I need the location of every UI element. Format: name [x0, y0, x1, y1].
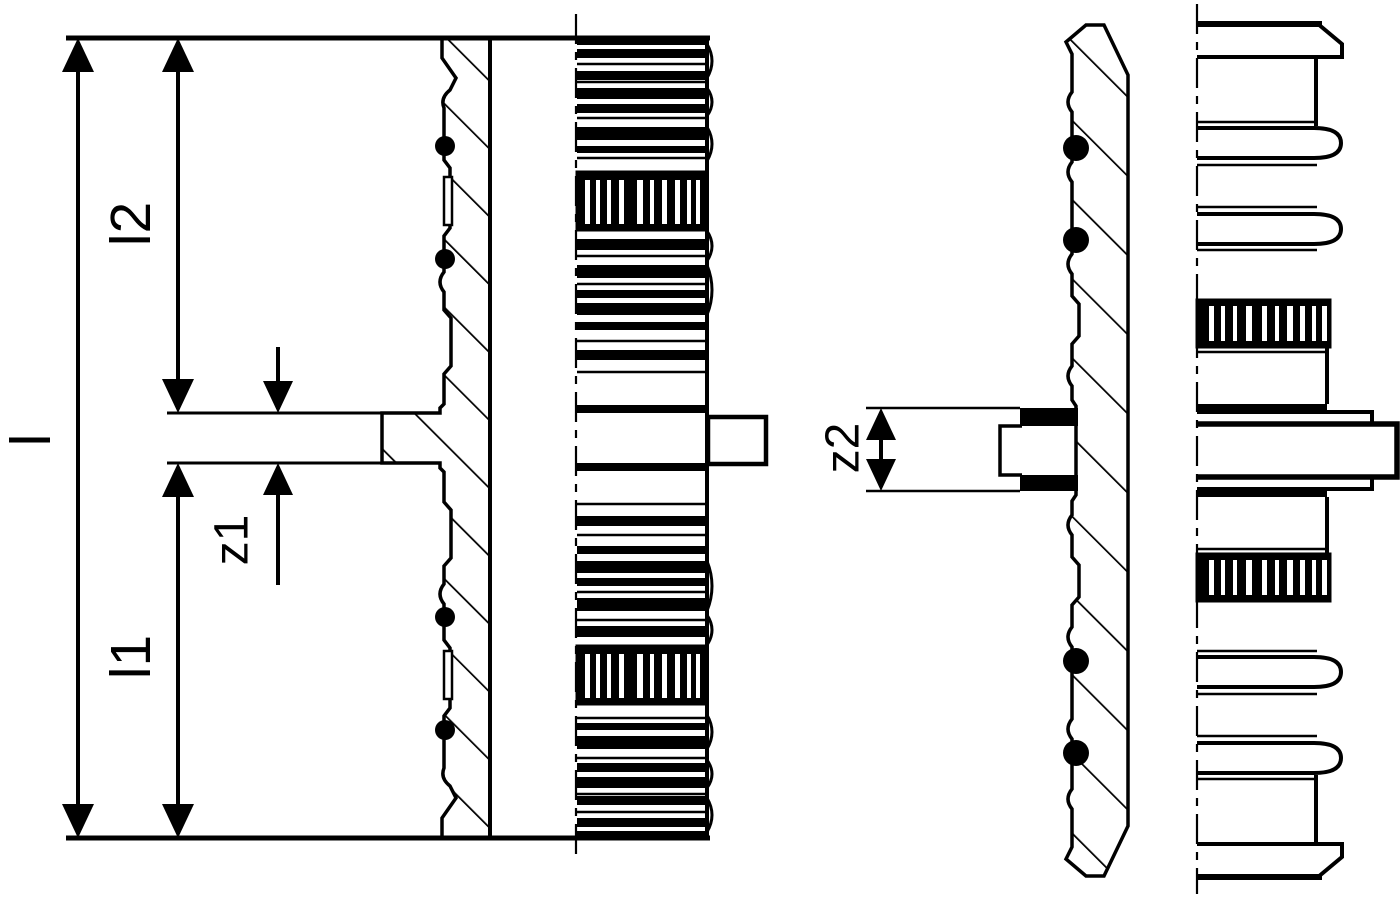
dimension-z2: z2: [817, 408, 1021, 491]
label-l: l: [0, 434, 63, 447]
bulge-ring: [1197, 214, 1341, 244]
dimension-l2: l2: [99, 38, 194, 413]
arrowhead-down: [263, 381, 293, 413]
fitting-body-section: [382, 38, 490, 838]
collar-seal-groove: [1000, 408, 1078, 491]
left-view: l l2 l1 z1: [0, 14, 766, 862]
collar-seal: [1020, 408, 1078, 426]
bulge-ring: [1197, 743, 1341, 773]
right-view: z2: [817, 4, 1398, 894]
knurl-band-upper: [577, 172, 707, 230]
arrowhead-up: [866, 408, 896, 440]
o-ring: [435, 720, 455, 740]
stop-collar-external: [1197, 404, 1397, 497]
body-wall: [382, 38, 490, 838]
end-cap-top: [1197, 24, 1342, 57]
bulge-ring: [1197, 657, 1341, 687]
bulge-ring: [1197, 128, 1341, 158]
o-ring: [1063, 740, 1089, 766]
o-ring: [1063, 648, 1089, 674]
label-z1: z1: [206, 515, 259, 566]
grip-ring-slot: [444, 177, 452, 225]
arrowhead-up: [62, 38, 94, 72]
external-profile: [1197, 24, 1397, 877]
arrowhead-up: [263, 463, 293, 495]
o-ring: [435, 607, 455, 627]
arrowhead-down: [162, 379, 194, 413]
stop-collar-tab: [708, 417, 766, 464]
knurl-band-lower: [577, 646, 707, 704]
o-ring: [435, 136, 455, 156]
grip-ring-slot: [444, 651, 452, 699]
dimension-l1: l1: [99, 463, 194, 838]
o-ring: [435, 249, 455, 269]
label-l1: l1: [99, 635, 163, 679]
arrowhead-down: [866, 459, 896, 491]
press-fitting-diagram: l l2 l1 z1: [0, 0, 1400, 900]
fitting-body-section: [1000, 25, 1128, 876]
arrowhead-down: [162, 804, 194, 838]
end-cap-bottom: [1197, 844, 1342, 877]
knurl-band-lower: [1197, 554, 1330, 601]
collar-seal: [1020, 475, 1078, 491]
o-ring: [1063, 227, 1089, 253]
arrowhead-up: [162, 38, 194, 72]
arrowhead-down: [62, 804, 94, 838]
drawing-canvas: l l2 l1 z1: [0, 0, 1400, 900]
label-z2: z2: [817, 423, 870, 474]
o-ring: [1063, 135, 1089, 161]
press-sleeve: [577, 38, 766, 838]
knurl-band-upper: [1197, 300, 1330, 347]
dimension-l: l: [0, 38, 94, 838]
dimension-z1: z1: [206, 347, 294, 585]
arrowhead-up: [162, 463, 194, 497]
label-l2: l2: [99, 202, 163, 246]
